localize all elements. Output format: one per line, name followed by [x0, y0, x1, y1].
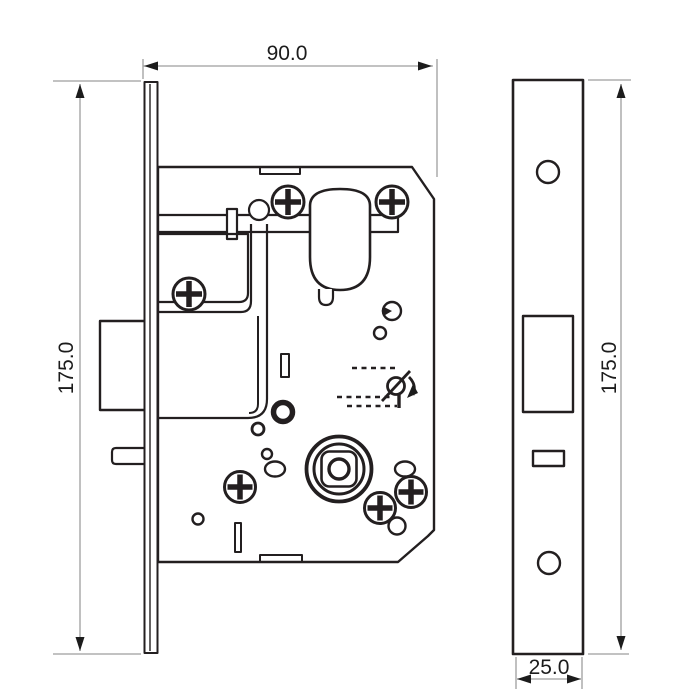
lever-post-head: [249, 200, 269, 220]
dim-label-side-height: 175.0: [598, 342, 621, 395]
side-view: [513, 80, 583, 654]
dim-label-front-width: 90.0: [267, 42, 308, 65]
dimension-front-width: 90.0: [143, 42, 437, 177]
deadlock-pin: [112, 448, 144, 464]
dim-label-front-height: 175.0: [55, 342, 78, 395]
phillips-screw-icon: [376, 186, 408, 218]
follower-drop-pin: [319, 289, 333, 305]
phillips-screw-icon: [225, 472, 256, 503]
latch-bolt: [100, 321, 144, 410]
lock-technical-drawing: 90.0 175.0 175.0 25.0: [0, 0, 700, 700]
faceplate-edge: [145, 82, 158, 653]
dimension-front-height: 175.0: [53, 81, 141, 654]
spindle-hub-icon: [307, 437, 372, 502]
dimension-side-height: 175.0: [588, 80, 631, 654]
phillips-screw-icon: [173, 278, 205, 310]
phillips-screw-icon: [272, 186, 304, 218]
phillips-screw-icon: [396, 477, 427, 508]
dimension-faceplate-width: 25.0: [516, 656, 582, 689]
cylinder-follower: [310, 189, 370, 290]
front-view: [100, 82, 434, 653]
dim-label-faceplate-width: 25.0: [529, 656, 570, 679]
